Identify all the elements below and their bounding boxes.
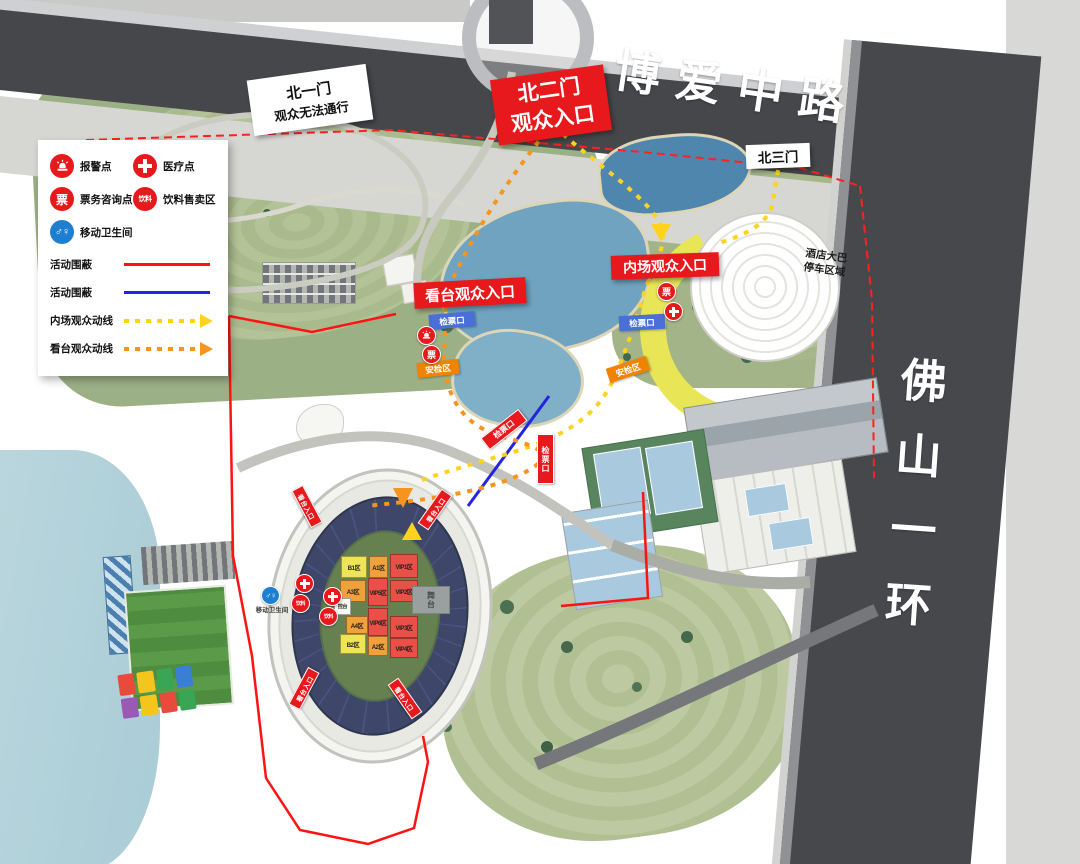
legend-row: 报警点 医疗点 [50,154,216,178]
medical-cross-icon [664,302,683,321]
legend-label: 票务咨询点 [80,192,133,207]
cross-glyph [328,592,338,602]
cross-glyph [300,579,310,589]
road-char: 佛 [893,342,954,420]
cross-glyph [138,159,152,173]
stand-entrance-label: 看台观众入口 [424,280,515,306]
legend-route-infield: 内场观众动线 [50,313,216,328]
ticket-gate-label: 检票口 [439,313,465,327]
ticket-icon: 票 [50,187,74,211]
yellow-dots-swatch [124,319,198,323]
ticket-gate-label: 检票口 [540,446,551,473]
gate-north1-note: 观众无法通行 [273,96,350,125]
infield-route-north3 [716,170,778,244]
drink-glyph: 饮料 [139,194,152,204]
ticket-gate-tag: 检票口 [537,434,554,484]
toilet-glyph: ♂♀ [55,226,70,238]
siren-glyph [55,159,70,174]
legend-label: 报警点 [80,159,112,174]
orange-dots-swatch [124,347,198,351]
legend-route-stand: 看台观众动线 [50,341,216,356]
alarm-icon [50,154,74,178]
gate-north3-name: 北三门 [757,145,798,166]
legend-row: ♂♀ 移动卫生间 [50,220,216,244]
route-arrow-icon [200,314,213,328]
ticket-glyph: 票 [662,285,671,298]
legend-item-medical: 医疗点 [133,154,216,178]
legend-item-drink: 饮料 饮料售卖区 [133,187,216,211]
toilet-icon: ♂♀ [50,220,74,244]
enclosure-dashed-east [860,186,874,478]
blue-line-swatch [124,291,210,294]
legend-item-alarm: 报警点 [50,154,133,178]
route-arrow-icon [651,224,671,242]
medical-cross-icon [133,154,157,178]
ticket-gate-tag: 检票口 [619,314,666,331]
route-arrow-icon [200,342,213,356]
legend-label: 饮料售卖区 [163,192,216,207]
road-char: 环 [878,565,939,643]
enclosure-red-west [229,316,428,844]
road-char: 一 [883,491,944,569]
legend-label: 活动围蔽 [50,257,124,272]
south-road [536,610,876,764]
medical-cross-icon [323,587,342,606]
mobile-toilet-label: 移动卫生间 [244,604,300,614]
route-arrow-icon [393,488,413,508]
siren-glyph [421,330,432,341]
cross-glyph [669,307,679,317]
ticket-icon: 票 [422,345,441,364]
enclosure-red-north [229,314,396,332]
site-map: B1区 A1区 VIP1区 A3区 VIP5区 VIP2区 控台 舞台 A4区 … [0,0,1080,864]
drink-icon: 饮料 [133,187,157,211]
ticket-glyph: 票 [427,348,436,361]
infield-entrance-label: 内场观众入口 [623,255,708,278]
gate-north3-sign: 北三门 [746,143,811,169]
legend-enclosure-blue: 活动围蔽 [50,285,216,300]
inner-road-east [612,545,810,583]
legend-label: 活动围蔽 [50,285,124,300]
legend-row: 票 票务咨询点 饮料 饮料售卖区 [50,187,216,211]
ticket-icon: 票 [657,282,676,301]
drink-glyph: 饮料 [324,613,333,620]
alarm-icon [417,326,436,345]
legend-item-ticket: 票 票务咨询点 [50,187,133,211]
route-arrow-icon [402,522,422,540]
drink-icon: 饮料 [319,607,338,626]
legend-item-toilet: ♂♀ 移动卫生间 [50,220,133,244]
legend-label: 内场观众动线 [50,313,124,328]
red-line-swatch [124,263,210,266]
legend-label: 医疗点 [163,159,195,174]
legend-panel: 报警点 医疗点 票 票务咨询点 饮料 饮料售卖区 ♂♀ 移动卫生间 活动 [38,140,228,376]
toilet-glyph: ♂♀ [266,591,276,600]
legend-enclosure-red: 活动围蔽 [50,257,216,272]
toilet-icon: ♂♀ [261,586,280,605]
legend-label: 移动卫生间 [80,225,133,240]
ticket-glyph: 票 [56,191,68,208]
medical-cross-icon [295,574,314,593]
ticket-gate-label: 检票口 [629,316,655,329]
road-char: 山 [888,417,949,495]
legend-label: 看台观众动线 [50,341,124,356]
infield-entrance-sign: 内场观众入口 [611,252,720,280]
